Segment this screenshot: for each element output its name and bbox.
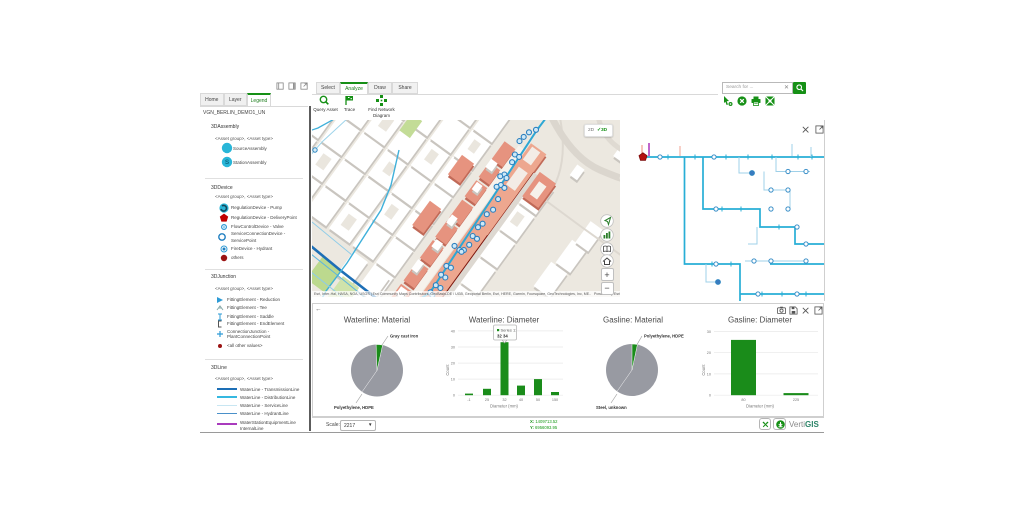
svg-text:10: 10 xyxy=(451,378,455,382)
svg-text:S: S xyxy=(225,159,230,166)
svg-text:Steel, unknown: Steel, unknown xyxy=(596,405,627,410)
svg-text:40: 40 xyxy=(519,398,523,402)
svg-text:Waterline: Diameter: Waterline: Diameter xyxy=(469,316,540,325)
svg-text:Gasline: Diameter: Gasline: Diameter xyxy=(728,316,792,325)
svg-text:50: 50 xyxy=(536,398,540,402)
svg-text:20: 20 xyxy=(451,362,455,366)
svg-text:Diameter (mm): Diameter (mm) xyxy=(746,404,775,409)
svg-text:Diameter (mm): Diameter (mm) xyxy=(490,404,519,409)
svg-text:0: 0 xyxy=(453,394,455,398)
svg-text:30: 30 xyxy=(451,345,455,349)
svg-text:Waterline: Material: Waterline: Material xyxy=(344,316,411,325)
svg-text:Series 1:: Series 1: xyxy=(501,328,517,333)
svg-text:25: 25 xyxy=(485,398,489,402)
svg-text:Polyethylene, HDPE: Polyethylene, HDPE xyxy=(644,334,684,339)
svg-text:30: 30 xyxy=(707,330,711,334)
svg-text:Polyethylene, HDPE: Polyethylene, HDPE xyxy=(334,405,374,410)
svg-text:40: 40 xyxy=(451,329,455,333)
svg-text:10: 10 xyxy=(707,372,711,376)
svg-text:150: 150 xyxy=(552,398,558,402)
svg-text:32: 32 xyxy=(502,398,506,402)
svg-text:225: 225 xyxy=(793,398,799,402)
svg-text:Count: Count xyxy=(701,364,706,376)
svg-text:Gray cast iron: Gray cast iron xyxy=(390,334,419,339)
svg-text:Count: Count xyxy=(445,364,450,376)
svg-text:-1: -1 xyxy=(467,398,470,402)
svg-text:80: 80 xyxy=(741,398,745,402)
svg-text:Gasline: Material: Gasline: Material xyxy=(603,316,663,325)
svg-text:20: 20 xyxy=(707,351,711,355)
svg-text:0: 0 xyxy=(709,394,711,398)
svg-text:32 34: 32 34 xyxy=(497,334,508,339)
